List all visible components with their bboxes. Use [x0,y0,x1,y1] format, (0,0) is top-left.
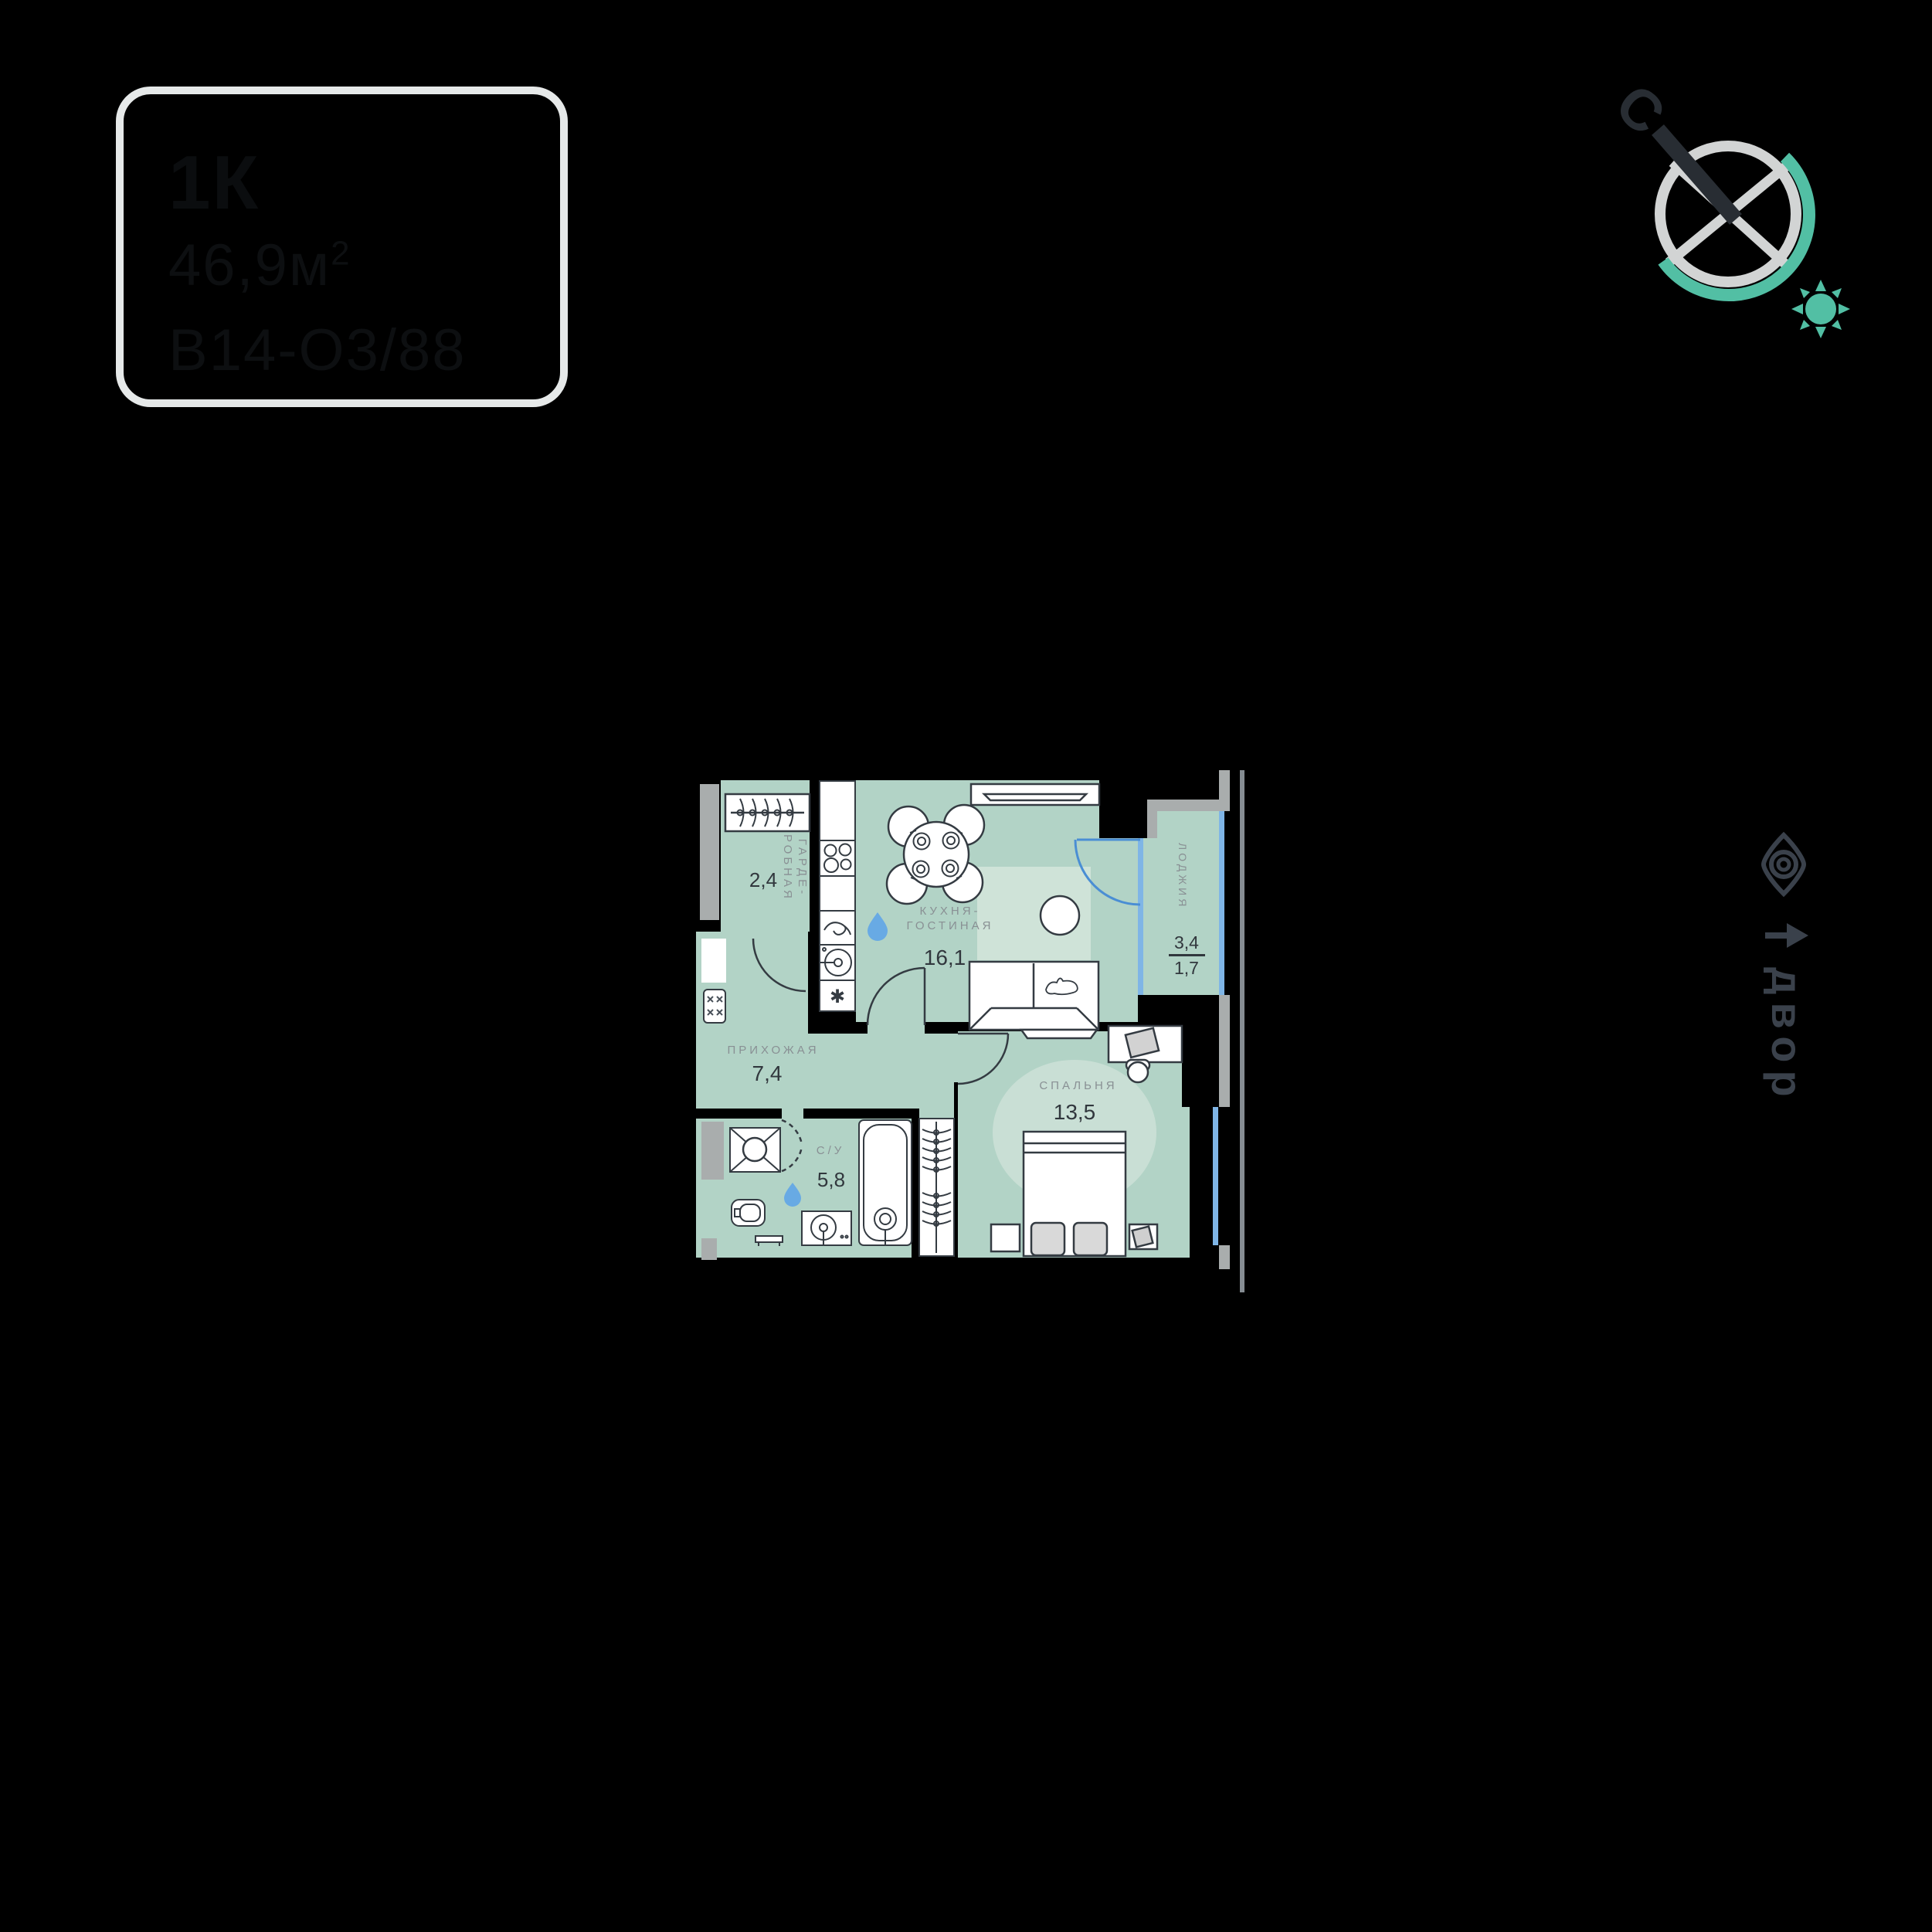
nightstand-icon [1129,1224,1157,1249]
furniture-layer [686,763,1250,1296]
bedroom-tv-icon [1021,1030,1097,1038]
dining-set-icon [887,805,984,904]
loggia-area-full: 3,4 [1165,932,1208,953]
electrical-panel-icon [708,997,722,1015]
living-door-arc [868,968,925,1025]
kitchen-sink-icon [820,948,851,976]
wardrobe-closet-icon [725,794,810,831]
unit-code-label: В14-О3/88 [168,317,467,384]
bed-icon [1024,1132,1126,1256]
room-area-hallway: 7,4 [744,1061,790,1086]
apartment-badge: 1К 46,9м2 В14-О3/88 [116,87,568,407]
sofa-icon [969,962,1098,1030]
fridge-symbol: ✱ [825,986,850,1007]
floor-plan: ГАРДЕ-РОБНАЯ 2,4 КУХНЯ-ГОСТИНАЯ 16,1 ПРИ… [686,763,1250,1296]
bathroom-sink-icon [802,1211,851,1245]
room-label-bedroom: СПАЛЬНЯ [1017,1078,1140,1093]
area-label: 46,9м2 [168,232,351,299]
room-area-wardrobe: 2,4 [740,868,786,892]
rooms-count-label: 1К [168,139,260,226]
hob-icon [824,844,851,873]
compass-sun-icon: С [1591,54,1854,363]
room-label-hallway: ПРИХОЖАЯ [711,1043,835,1058]
courtyard-arrow-icon [1765,922,1810,949]
water-drop-icon [784,1183,801,1207]
area-superscript: 2 [331,235,351,273]
bedroom-closet-icon [919,1119,954,1256]
nightstand-icon [991,1224,1020,1251]
sun-icon [1791,280,1850,338]
loggia-area-divider [1169,954,1205,956]
eye-icon [1760,831,1808,898]
bathroom-fold-door [782,1146,802,1171]
room-label-bathroom: С/У [807,1143,854,1158]
bedroom-door-arc [958,1034,1008,1084]
room-label-kitchen-living: КУХНЯ-ГОСТИНАЯ [881,904,1020,933]
courtyard-label: двор [1762,967,1812,1105]
room-area-bedroom: 13,5 [1047,1100,1102,1125]
bathtub-icon [859,1120,912,1245]
hood-icon [824,922,851,935]
washing-machine-icon [730,1128,780,1172]
loggia-area-reduced: 1,7 [1165,958,1208,979]
toilet-icon [732,1200,765,1226]
room-area-kitchen-living: 16,1 [918,946,972,970]
tv-console-icon [971,784,1099,805]
bench-icon [755,1236,783,1246]
bathroom-fold-door [782,1120,802,1145]
room-label-loggia: ЛОДЖИЯ [1175,843,1190,909]
room-area-bathroom: 5,8 [808,1168,854,1192]
wardrobe-door-arc [753,939,806,991]
pouf-icon [1041,896,1079,935]
